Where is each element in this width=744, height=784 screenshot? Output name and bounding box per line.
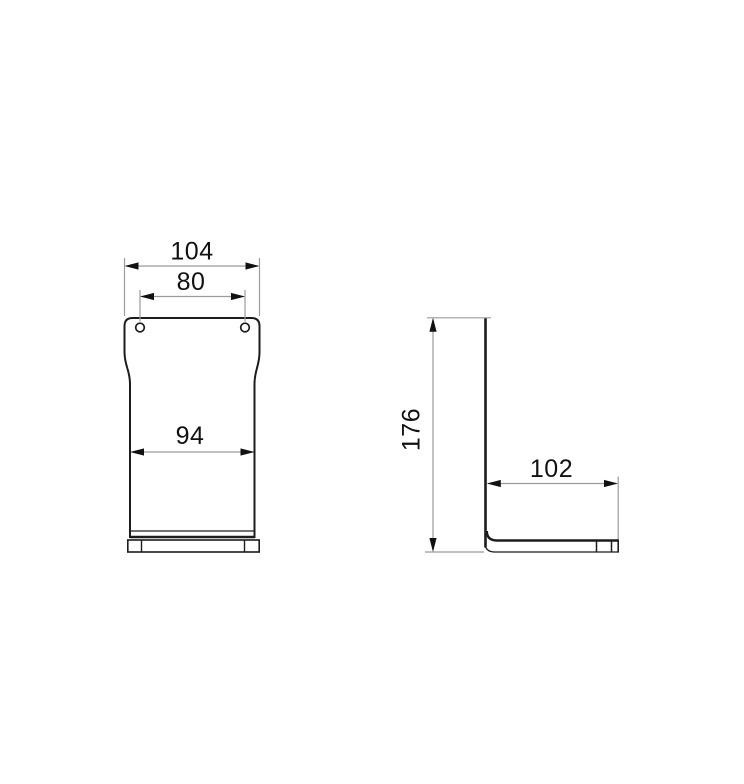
dimension-hole-spacing: 80	[140, 268, 245, 322]
dimension-body-width: 94	[130, 422, 255, 456]
dim-label-overall-width: 104	[170, 238, 213, 266]
dim-label-height: 176	[398, 408, 426, 451]
dimension-depth: 102	[487, 455, 618, 539]
arrow-left-icon	[140, 293, 154, 300]
arrow-right-icon	[604, 480, 618, 487]
side-view: 176 102	[398, 318, 619, 553]
arrow-right-icon	[241, 448, 255, 455]
dim-label-body-width: 94	[176, 422, 205, 450]
front-view: 104 80 94	[125, 238, 260, 553]
dim-label-depth: 102	[530, 455, 573, 483]
arrow-left-icon	[130, 448, 144, 455]
side-view-base-bottom	[485, 543, 618, 552]
arrow-right-icon	[231, 293, 245, 300]
mounting-hole-left	[136, 323, 145, 332]
drawing-page: 104 80 94	[0, 0, 744, 784]
mounting-hole-right	[241, 323, 250, 332]
base-front-edge	[128, 540, 259, 552]
technical-drawing-canvas: 104 80 94	[0, 0, 744, 784]
arrow-right-icon	[246, 262, 260, 269]
dimension-height: 176	[398, 318, 492, 552]
arrow-left-icon	[125, 262, 139, 269]
arrow-down-icon	[429, 538, 436, 552]
side-view-base-top	[487, 531, 618, 541]
dim-label-hole-spacing: 80	[177, 268, 206, 296]
arrow-up-icon	[429, 318, 436, 332]
arrow-left-icon	[487, 480, 501, 487]
